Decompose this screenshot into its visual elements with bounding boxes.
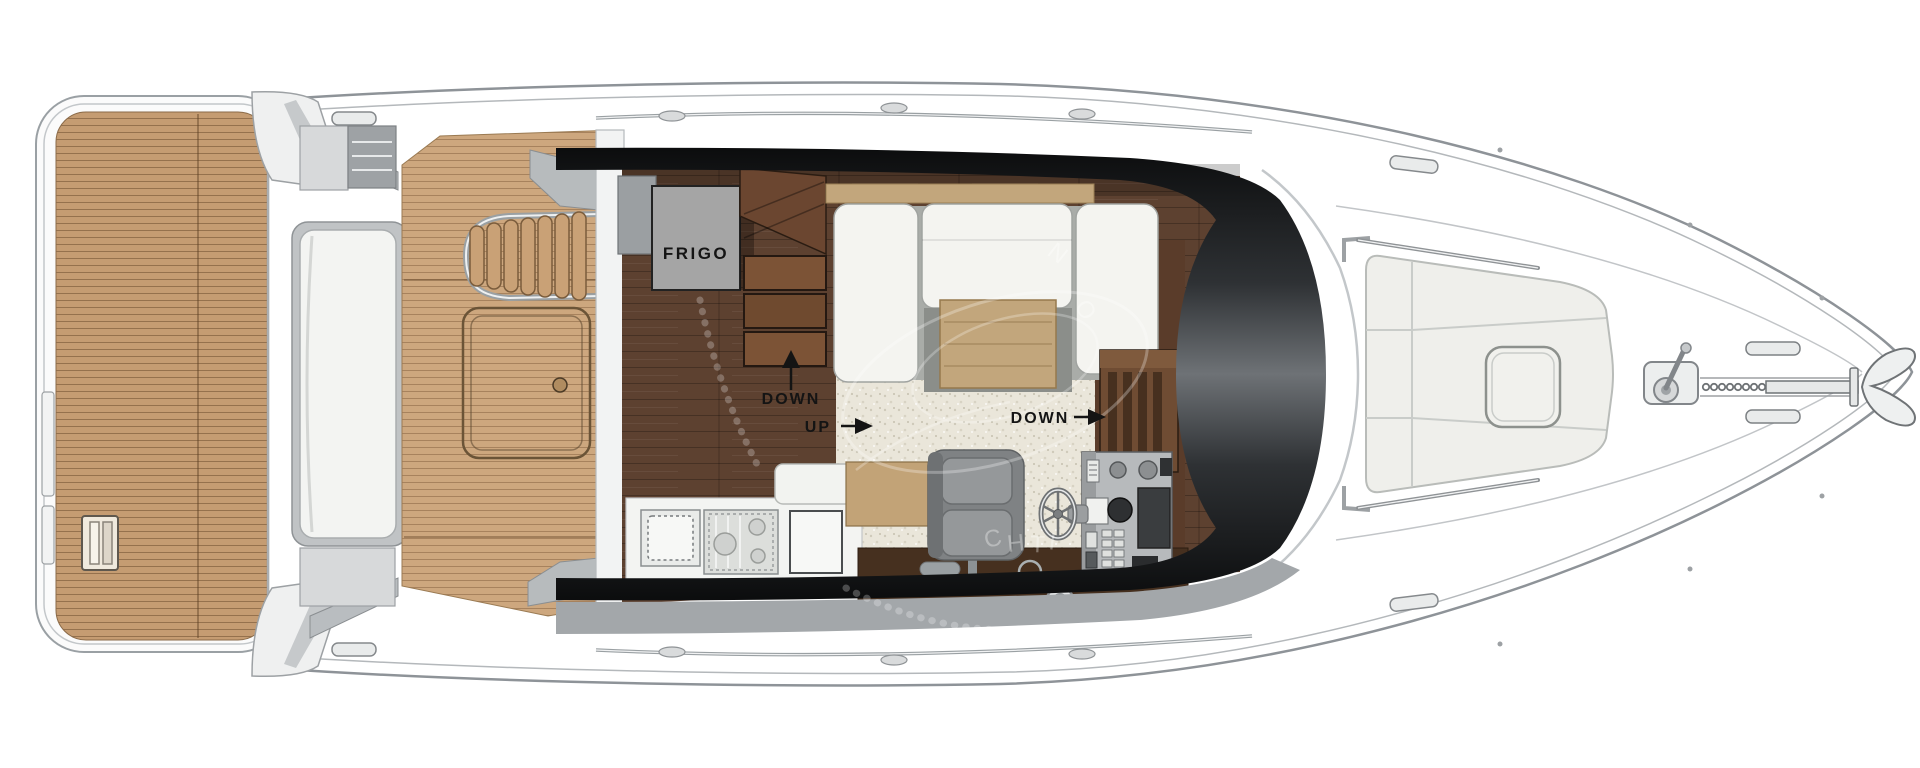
aft-companionway-stairs xyxy=(740,168,826,366)
sofa-right-chaise xyxy=(1076,204,1158,374)
galley-worktop xyxy=(790,511,842,573)
fridge-unit: FRIGO xyxy=(652,186,754,290)
burner xyxy=(714,533,736,555)
burner xyxy=(749,519,765,535)
transom-grill xyxy=(348,126,396,188)
hatch-latch xyxy=(553,378,567,392)
sideboard-shelf xyxy=(826,184,1094,203)
galley-peninsula xyxy=(775,464,853,504)
burner xyxy=(751,549,765,563)
transom-bench-seat xyxy=(292,222,408,546)
watermark-letter: T xyxy=(1030,531,1046,559)
up-label: UP xyxy=(805,419,831,436)
galley-sink xyxy=(641,510,700,566)
entry-cabinet xyxy=(618,176,656,254)
gauge xyxy=(1110,462,1126,478)
fridge-label: FRIGO xyxy=(663,244,729,263)
fwd-down-label: DOWN xyxy=(1011,410,1070,427)
gauge xyxy=(1139,461,1157,479)
bow-cleat xyxy=(1746,342,1800,355)
platform-hatch xyxy=(82,516,118,570)
yacht-deck-plan-canvas: FRIGO xyxy=(0,0,1920,768)
sunpad-hatch xyxy=(1486,347,1560,427)
helm-knob xyxy=(1108,498,1132,522)
helm-display xyxy=(1138,488,1170,548)
cockpit-table-hatch xyxy=(463,308,590,458)
yacht-deck-plan: FRIGO xyxy=(0,0,1920,768)
sideboard-cleat xyxy=(920,562,960,576)
swim-platform xyxy=(36,96,286,652)
anchor-shank xyxy=(1766,381,1858,393)
aft-down-label: DOWN xyxy=(762,391,821,408)
galley-stove xyxy=(704,510,778,574)
watermark-letter: H xyxy=(1006,529,1026,558)
cockpit xyxy=(402,130,618,616)
sofa-left-chaise xyxy=(834,204,918,382)
bow-cleat xyxy=(1746,410,1800,423)
